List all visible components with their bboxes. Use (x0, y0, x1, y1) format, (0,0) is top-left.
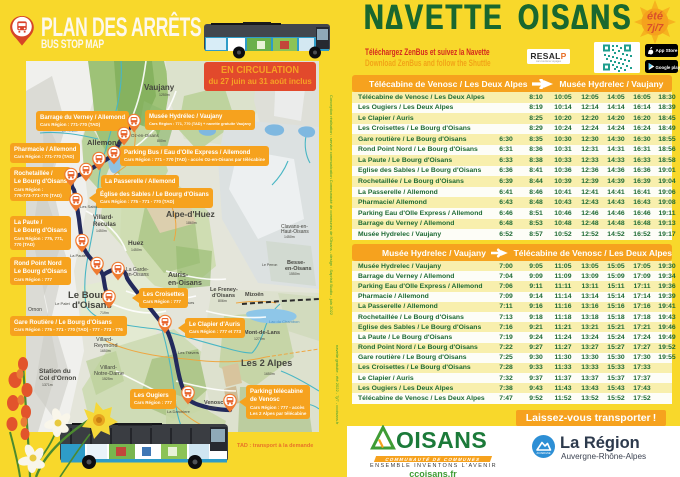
svg-text:AUVERGNE: AUVERGNE (536, 452, 550, 455)
svg-text:7j/7: 7j/7 (647, 23, 664, 34)
svg-text:été: été (647, 11, 663, 23)
svg-text:OISANS: OISANS (396, 427, 487, 451)
